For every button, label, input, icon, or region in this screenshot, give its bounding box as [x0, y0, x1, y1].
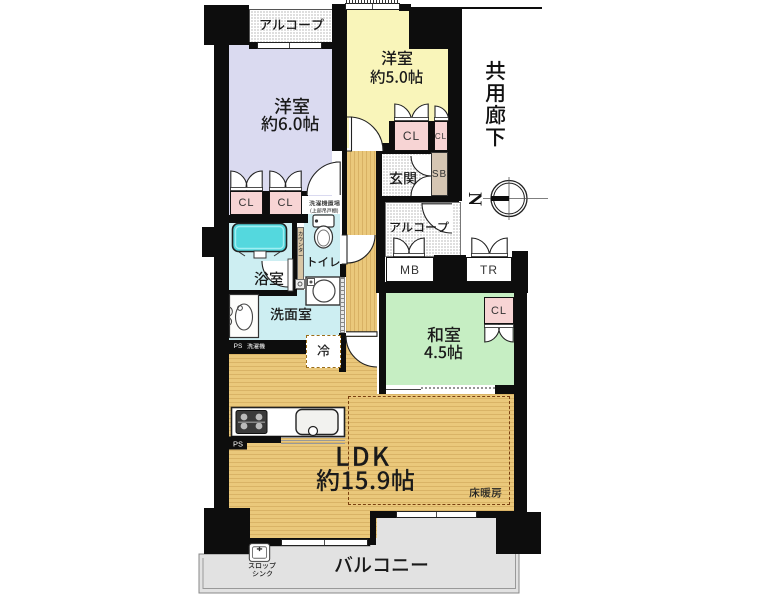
- svg-text:PS: PS: [233, 440, 243, 449]
- svg-text:N: N: [466, 192, 485, 206]
